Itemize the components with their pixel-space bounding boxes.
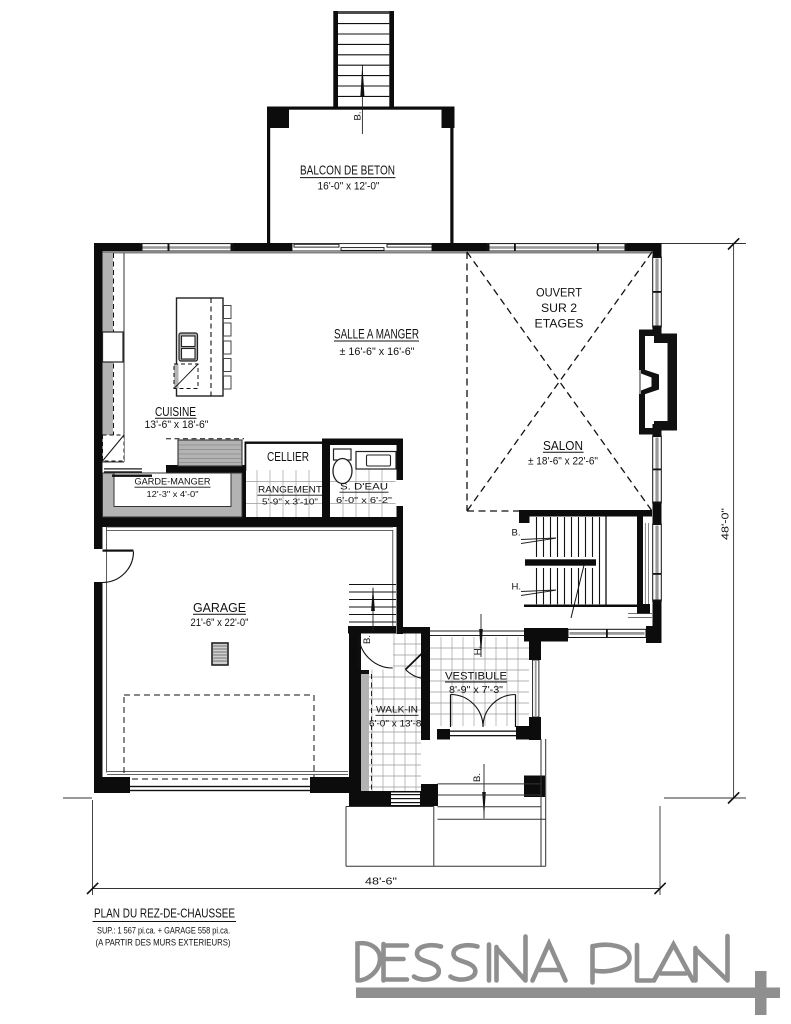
svg-text:B.: B. <box>512 528 521 539</box>
svg-text:GARAGE: GARAGE <box>193 601 246 615</box>
svg-text:OUVERT: OUVERT <box>536 286 583 300</box>
svg-text:VESTIBULE: VESTIBULE <box>445 671 507 683</box>
svg-text:BALCON DE BETON: BALCON DE BETON <box>300 163 395 178</box>
svg-text:B.: B. <box>472 773 483 782</box>
svg-text:16'-0" x 12'-0": 16'-0" x 12'-0" <box>318 181 380 193</box>
svg-text:48'-0": 48'-0" <box>720 508 732 540</box>
svg-text:PLAN DU REZ-DE-CHAUSSEE: PLAN DU REZ-DE-CHAUSSEE <box>94 906 235 921</box>
svg-text:H.: H. <box>512 582 522 593</box>
svg-text:CUISINE: CUISINE <box>155 405 196 419</box>
svg-text:(A PARTIR DES MURS EXTERIEURS): (A PARTIR DES MURS EXTERIEURS) <box>96 938 231 948</box>
svg-text:ETAGES: ETAGES <box>535 317 584 331</box>
svg-text:13'-6" x 18'-6": 13'-6" x 18'-6" <box>145 419 209 431</box>
svg-text:21'-6" x 22'-0": 21'-6" x 22'-0" <box>191 617 249 629</box>
svg-text:S. D'EAU: S. D'EAU <box>340 482 388 493</box>
svg-text:48'-6": 48'-6" <box>365 876 397 888</box>
svg-text:RANGEMENT: RANGEMENT <box>258 485 323 495</box>
svg-text:CELLIER: CELLIER <box>267 450 309 464</box>
svg-text:SUR 2: SUR 2 <box>541 301 577 315</box>
svg-text:SALON: SALON <box>543 439 583 453</box>
svg-text:GARDE-MANGER: GARDE-MANGER <box>135 477 211 487</box>
svg-text:5'-9" x 3'-10": 5'-9" x 3'-10" <box>262 497 318 507</box>
svg-text:± 18'-6" x 22'-6": ± 18'-6" x 22'-6" <box>528 456 598 468</box>
svg-text:± 16'-6" x 16'-6": ± 16'-6" x 16'-6" <box>340 346 415 358</box>
svg-text:6'-0" x 13'-8": 6'-0" x 13'-8" <box>369 719 425 730</box>
svg-text:6'-0" x 6'-2": 6'-0" x 6'-2" <box>336 495 392 505</box>
svg-text:12'-3" x 4'-0": 12'-3" x 4'-0" <box>147 489 199 499</box>
svg-text:H.: H. <box>473 646 484 656</box>
svg-text:B.: B. <box>353 112 364 121</box>
svg-text:B.: B. <box>362 635 373 644</box>
svg-text:SUP.: 1 567 pi.ca. + GARAGE 55: SUP.: 1 567 pi.ca. + GARAGE 558 pi.ca. <box>97 926 230 936</box>
svg-text:8'-9" x 7'-3": 8'-9" x 7'-3" <box>449 685 503 696</box>
svg-text:SALLE A MANGER: SALLE A MANGER <box>334 327 419 342</box>
svg-text:WALK-IN: WALK-IN <box>376 705 418 716</box>
